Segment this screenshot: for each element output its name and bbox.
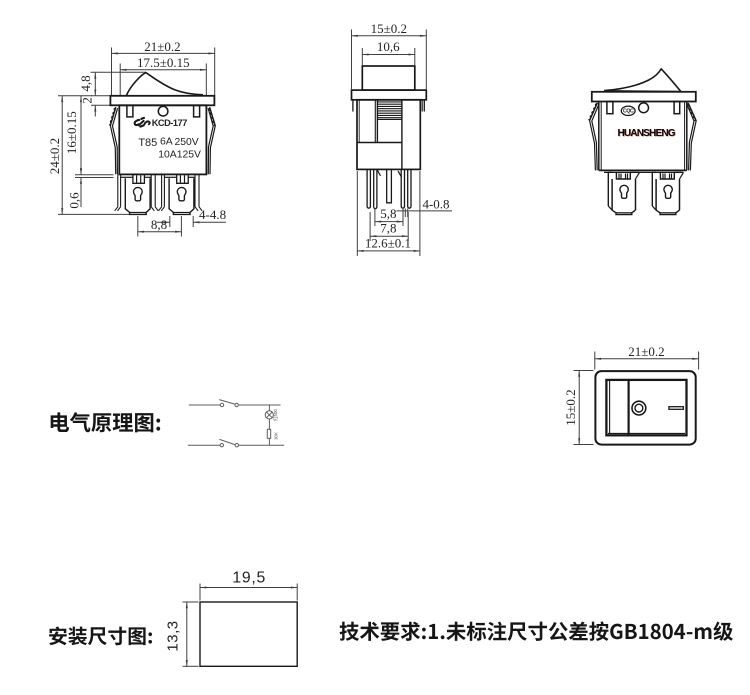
svg-text:21±0.2: 21±0.2 [628, 344, 664, 359]
svg-text:4-0.8: 4-0.8 [422, 197, 449, 212]
svg-text:12.6±0.1: 12.6±0.1 [365, 236, 411, 251]
svg-text:0,6: 0,6 [67, 192, 82, 209]
svg-text:16±0.15: 16±0.15 [64, 111, 79, 154]
svg-text:红500: 红500 [272, 409, 278, 421]
svg-text:30K: 30K [274, 432, 279, 440]
svg-text:15±0.2: 15±0.2 [563, 389, 578, 425]
svg-text:CQC: CQC [623, 109, 634, 115]
svg-text:24±0.2: 24±0.2 [47, 138, 62, 174]
svg-text:13,3: 13,3 [165, 620, 182, 651]
svg-text:8,8: 8,8 [151, 217, 167, 232]
svg-text:10A125V: 10A125V [158, 150, 201, 161]
svg-text:19,5: 19,5 [232, 569, 266, 586]
svg-text:5,8: 5,8 [380, 206, 396, 221]
svg-text:HUANSHENG: HUANSHENG [617, 128, 675, 139]
svg-text:6A: 6A [160, 137, 173, 148]
svg-text:4,8: 4,8 [78, 75, 93, 91]
svg-text:4-4.8: 4-4.8 [199, 207, 226, 222]
svg-text:10,6: 10,6 [377, 39, 400, 54]
svg-text:T85: T85 [138, 137, 157, 149]
svg-text:250V: 250V [174, 137, 198, 148]
svg-text:7,8: 7,8 [380, 221, 396, 236]
svg-text:KCD-177: KCD-177 [152, 118, 187, 128]
svg-text:17.5±0.15: 17.5±0.15 [137, 55, 190, 70]
svg-text:21±0.2: 21±0.2 [144, 39, 180, 54]
svg-text:15±0.2: 15±0.2 [371, 21, 407, 36]
